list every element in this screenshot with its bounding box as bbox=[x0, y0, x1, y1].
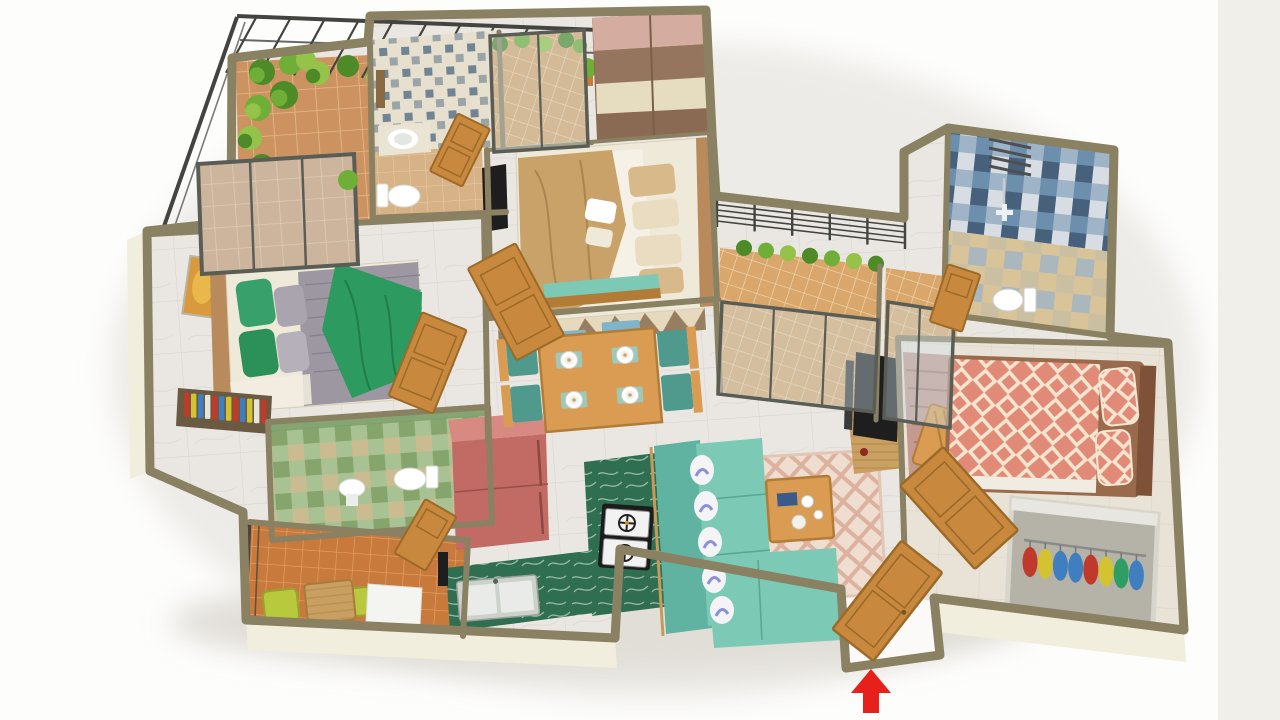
clothing-item bbox=[1023, 547, 1038, 577]
toilet-3 bbox=[394, 466, 438, 490]
shrub bbox=[306, 69, 320, 83]
book bbox=[233, 397, 238, 421]
glass-door-bedroom3-terrace bbox=[198, 154, 358, 274]
clothing-item bbox=[1068, 553, 1083, 583]
dining-chair bbox=[660, 370, 703, 415]
washing-machine bbox=[366, 584, 422, 626]
toilet bbox=[377, 184, 420, 207]
parapet-shrub bbox=[824, 250, 840, 266]
shrub bbox=[245, 103, 261, 119]
refrigerator bbox=[448, 412, 549, 550]
clothing-item bbox=[1129, 560, 1144, 590]
wash-basin bbox=[378, 122, 431, 156]
shrub bbox=[337, 55, 359, 77]
glass-door-balcony1 bbox=[718, 302, 878, 412]
parapet-shrub bbox=[780, 245, 796, 261]
clothing-item bbox=[1114, 558, 1129, 588]
gas-hob bbox=[598, 503, 654, 570]
book bbox=[184, 393, 189, 417]
bed-two bbox=[944, 355, 1157, 498]
book bbox=[254, 399, 259, 423]
parapet-shrub bbox=[802, 248, 818, 264]
dining-chair bbox=[656, 326, 699, 371]
render-canvas: 3 BHK Apartment – 3D Isometric Floor Pla… bbox=[0, 0, 1280, 720]
parapet-shrub bbox=[736, 240, 752, 256]
book bbox=[226, 397, 231, 421]
shrub bbox=[238, 134, 252, 148]
shrub bbox=[271, 90, 288, 107]
shrub bbox=[249, 67, 265, 83]
parapet-shrub bbox=[846, 253, 862, 269]
clothing-item bbox=[1053, 551, 1068, 581]
book bbox=[247, 399, 252, 423]
glass-door-master-balcony bbox=[490, 30, 588, 152]
toilet-2 bbox=[993, 288, 1036, 312]
book bbox=[212, 395, 217, 419]
wicker-table bbox=[304, 580, 356, 625]
book bbox=[191, 394, 196, 418]
parapet-shrub bbox=[758, 243, 774, 259]
decor-item bbox=[860, 448, 868, 456]
book bbox=[205, 395, 210, 419]
dining-table bbox=[538, 328, 662, 432]
bookshelf bbox=[176, 388, 272, 434]
book bbox=[198, 394, 203, 418]
coffee-table bbox=[766, 476, 834, 542]
tap bbox=[438, 552, 448, 586]
book bbox=[240, 398, 245, 422]
floorplan-render: 3 BHK Apartment – 3D Isometric Floor Pla… bbox=[0, 0, 1280, 720]
wardrobe-sliding bbox=[592, 11, 711, 140]
clothing-item bbox=[1083, 555, 1098, 585]
wall bbox=[370, 44, 373, 220]
book bbox=[219, 396, 224, 420]
open-wardrobe bbox=[1007, 498, 1158, 624]
mirror bbox=[376, 70, 385, 108]
clothing-item bbox=[1099, 557, 1114, 587]
background-right-strip bbox=[1218, 0, 1280, 720]
clothing-item bbox=[1038, 549, 1053, 579]
